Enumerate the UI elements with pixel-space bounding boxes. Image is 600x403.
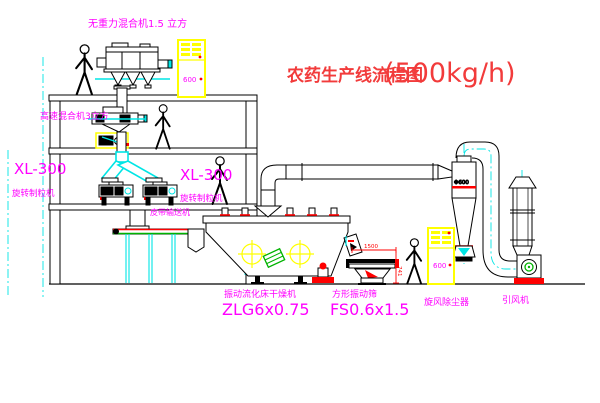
flow-diagram-canvas: 600 <box>0 0 600 403</box>
granulator-right-model: XL-300 <box>180 166 232 184</box>
granulator-left-model: XL-300 <box>14 160 66 178</box>
cabinet-top-text: 600 <box>183 76 196 84</box>
belt-conveyor <box>113 210 204 283</box>
gravity-free-mixer <box>95 43 172 113</box>
exhaust-stack <box>509 177 536 255</box>
worker-figure-floor2 <box>156 105 170 149</box>
indicator-dot <box>199 56 202 59</box>
production-line-diagram: 600 <box>0 0 600 403</box>
indicator-dot <box>449 264 452 267</box>
stack-rain-cap <box>509 177 536 188</box>
diagram-title-capacity: (500kg/h) <box>384 58 516 89</box>
cabinet-right-text: 600 <box>433 262 446 270</box>
cyclone-dia-label: Φ600 <box>454 180 469 186</box>
cyclone-name-label: 旋风除尘器 <box>424 296 469 308</box>
floor2-slab <box>49 148 257 154</box>
worker-figure-ground <box>407 239 421 284</box>
y-feed-pipe <box>102 152 162 182</box>
conveyor-discharge-hopper <box>188 229 204 252</box>
granulator-right-unit <box>143 182 177 205</box>
screen-dim-width: 1500 <box>364 244 378 250</box>
fan-name-label: 引风机 <box>502 294 529 306</box>
screen-model-label: FS0.6x1.5 <box>330 300 409 319</box>
indicator-dot <box>448 232 451 235</box>
gravity-mixer-label: 无重力混合机1.5 立方 <box>88 17 187 30</box>
belt-conveyor-label: 皮带输送机 <box>150 207 190 217</box>
control-cabinet-top: 600 <box>178 40 205 97</box>
roof-slab <box>49 95 257 101</box>
cyclone-separator: Φ600 <box>452 156 476 261</box>
exhaust-duct <box>255 163 452 217</box>
hs-mixer-discharge-pipe <box>117 132 126 153</box>
induced-draft-fan <box>514 255 544 284</box>
pipe-cap <box>168 60 172 68</box>
granulator-right-name: 旋转制粒机 <box>180 193 223 204</box>
granulator-left-unit <box>99 182 133 205</box>
indicator-dot <box>200 78 203 81</box>
conveyor-legs <box>126 234 175 283</box>
dryer-name-label: 振动流化床干燥机 <box>224 288 296 300</box>
dryer-model-label: ZLG6x0.75 <box>222 300 310 319</box>
screen-name-label: 方形振动筛 <box>332 288 377 300</box>
control-cabinet-right: 600 <box>428 228 454 284</box>
fan-base <box>514 278 544 284</box>
fluid-bed-dryer <box>203 208 362 285</box>
worker-figure-roof <box>76 45 92 95</box>
granulator-left-name: 旋转制粒机 <box>12 188 55 199</box>
high-speed-mixer-label: 高速混合机3立方 <box>40 110 109 122</box>
